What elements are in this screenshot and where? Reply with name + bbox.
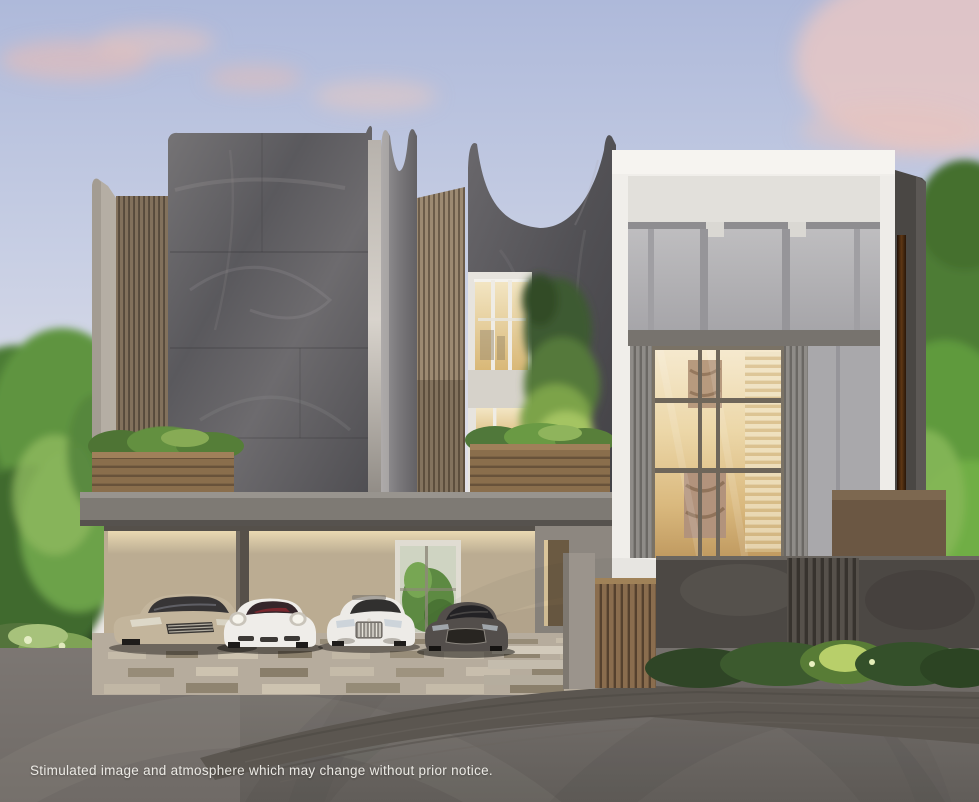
left-planter-box bbox=[88, 426, 244, 496]
carport-cove-light bbox=[108, 528, 536, 554]
glazing-louver-right bbox=[784, 346, 808, 558]
disclaimer-caption: Stimulated image and atmosphere which ma… bbox=[30, 763, 493, 778]
double-height-glazing bbox=[652, 346, 784, 558]
canopy-fascia bbox=[80, 492, 618, 526]
rendering-canvas: Stimulated image and atmosphere which ma… bbox=[0, 0, 979, 802]
glazing-louver-left bbox=[630, 346, 652, 558]
fence-slat-section bbox=[787, 558, 859, 646]
panel-notch-left bbox=[706, 222, 724, 237]
scene-art bbox=[0, 0, 979, 802]
middle-planter-box bbox=[465, 423, 615, 498]
panel-notch-right bbox=[788, 222, 806, 237]
marble-light-seam bbox=[368, 140, 381, 500]
